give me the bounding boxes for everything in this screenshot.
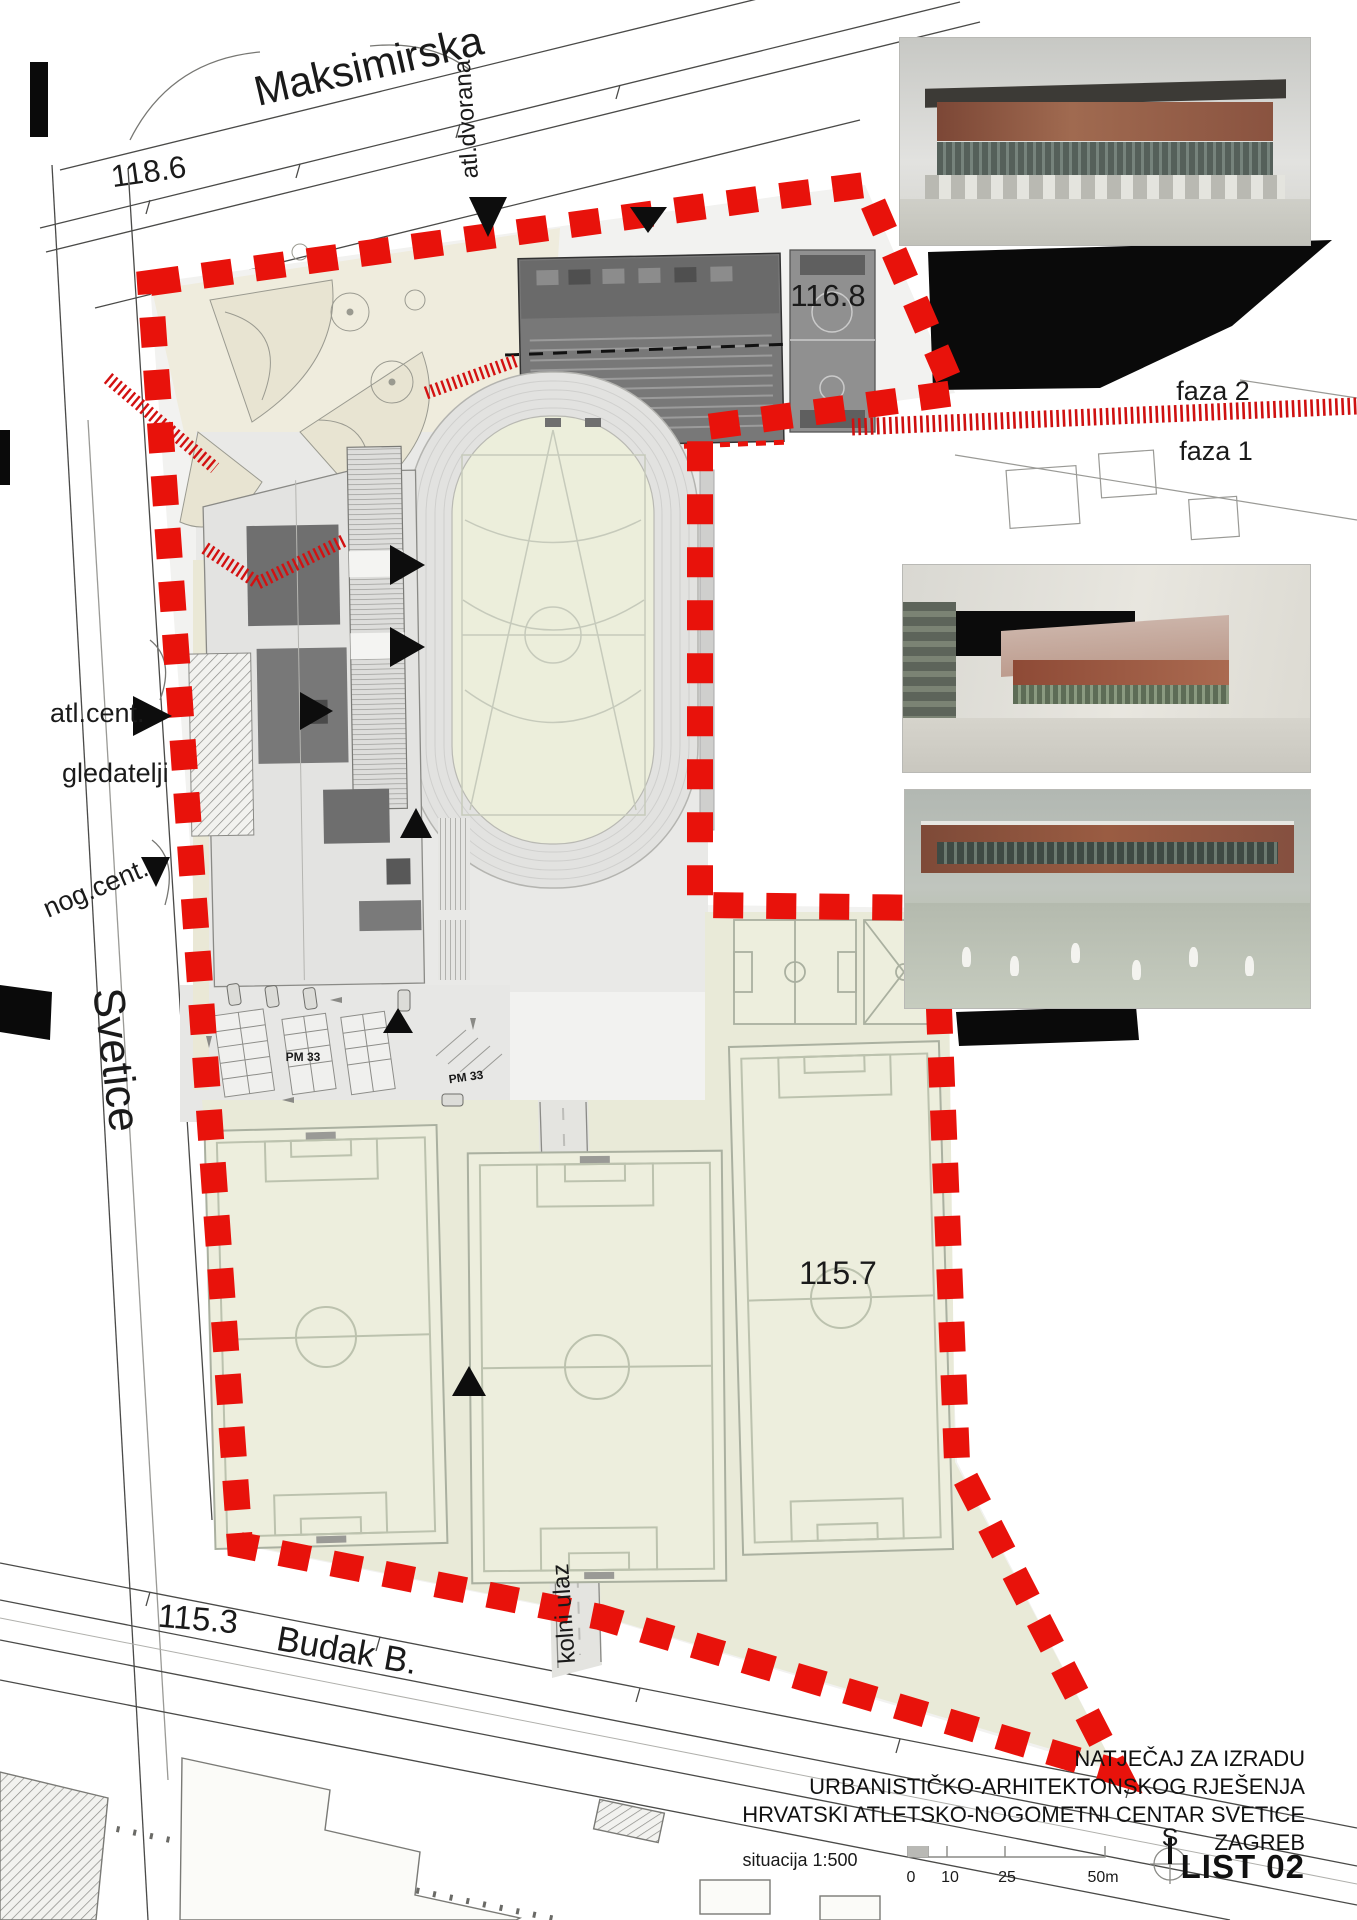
site-plan-canvas: Maksimirska 118.6 atl.dvorana 116.8 faza… xyxy=(0,0,1357,1920)
label-faza-1: faza 1 xyxy=(1179,436,1253,466)
render3-player xyxy=(962,947,971,967)
running-track xyxy=(408,372,714,888)
elevation-115-3: 115.3 xyxy=(156,1597,239,1641)
scale-tick-10: 10 xyxy=(941,1869,959,1886)
render1-glazing xyxy=(937,142,1273,175)
label-nog-cent: nog.cent. xyxy=(39,853,153,924)
scale-tick-25: 25 xyxy=(998,1869,1016,1886)
render3-glazing xyxy=(937,842,1277,864)
render-street-view xyxy=(900,38,1310,245)
football-field-middle xyxy=(468,1151,726,1584)
render3-player xyxy=(1189,947,1198,967)
label-faza-2: faza 2 xyxy=(1176,376,1250,406)
render-pitch-view xyxy=(905,790,1310,1008)
label-gledatelji: gledatelji xyxy=(62,758,169,788)
render2-glazing xyxy=(1013,685,1229,704)
label-pm33-1: PM 33 xyxy=(286,1050,321,1064)
scale-tick-50: 50m xyxy=(1087,1869,1118,1886)
label-atl-cent: atl.cent. xyxy=(50,698,145,728)
render1-ground xyxy=(900,199,1310,245)
title-line-3: HRVATSKI ATLETSKO-NOGOMETNI CENTAR SVETI… xyxy=(742,1802,1305,1828)
elevation-115-7: 115.7 xyxy=(799,1255,877,1291)
render1-facade xyxy=(937,102,1273,141)
faza-zone-outlines xyxy=(955,380,1357,540)
render3-player xyxy=(1071,943,1080,963)
render3-player xyxy=(1245,956,1254,976)
render-aerial-view xyxy=(903,565,1310,772)
scale-bar xyxy=(908,1846,1105,1857)
street-label-budak: Budak B. xyxy=(274,1619,421,1682)
render3-player xyxy=(1010,956,1019,976)
scale-label: situacija 1:500 xyxy=(742,1850,857,1870)
street-label-svetice: Svetice xyxy=(83,985,149,1134)
elevation-118-6: 118.6 xyxy=(109,149,188,194)
label-atl-dvorana: atl.dvorana xyxy=(449,58,484,179)
training-court-1 xyxy=(734,920,856,1024)
sheet-number: LIST 02 xyxy=(1181,1848,1305,1886)
north-label: S xyxy=(1162,1824,1179,1852)
title-line-2: URBANISTIČKO-ARHITEKTONSKOG RJEŠENJA xyxy=(809,1774,1305,1800)
elevation-116-8: 116.8 xyxy=(790,278,865,313)
render1-columns xyxy=(925,175,1286,200)
render3-player xyxy=(1132,960,1141,980)
neighbour-buildings xyxy=(0,1758,880,1920)
render2-trees xyxy=(903,602,956,726)
parking-comb-2 xyxy=(438,920,470,980)
title-line-1: NATJEČAJ ZA IZRADU xyxy=(1074,1746,1305,1772)
render2-ground xyxy=(903,718,1310,772)
scale-tick-0: 0 xyxy=(907,1869,916,1886)
parking-comb-1 xyxy=(438,818,470,910)
football-field-right xyxy=(729,1041,953,1555)
